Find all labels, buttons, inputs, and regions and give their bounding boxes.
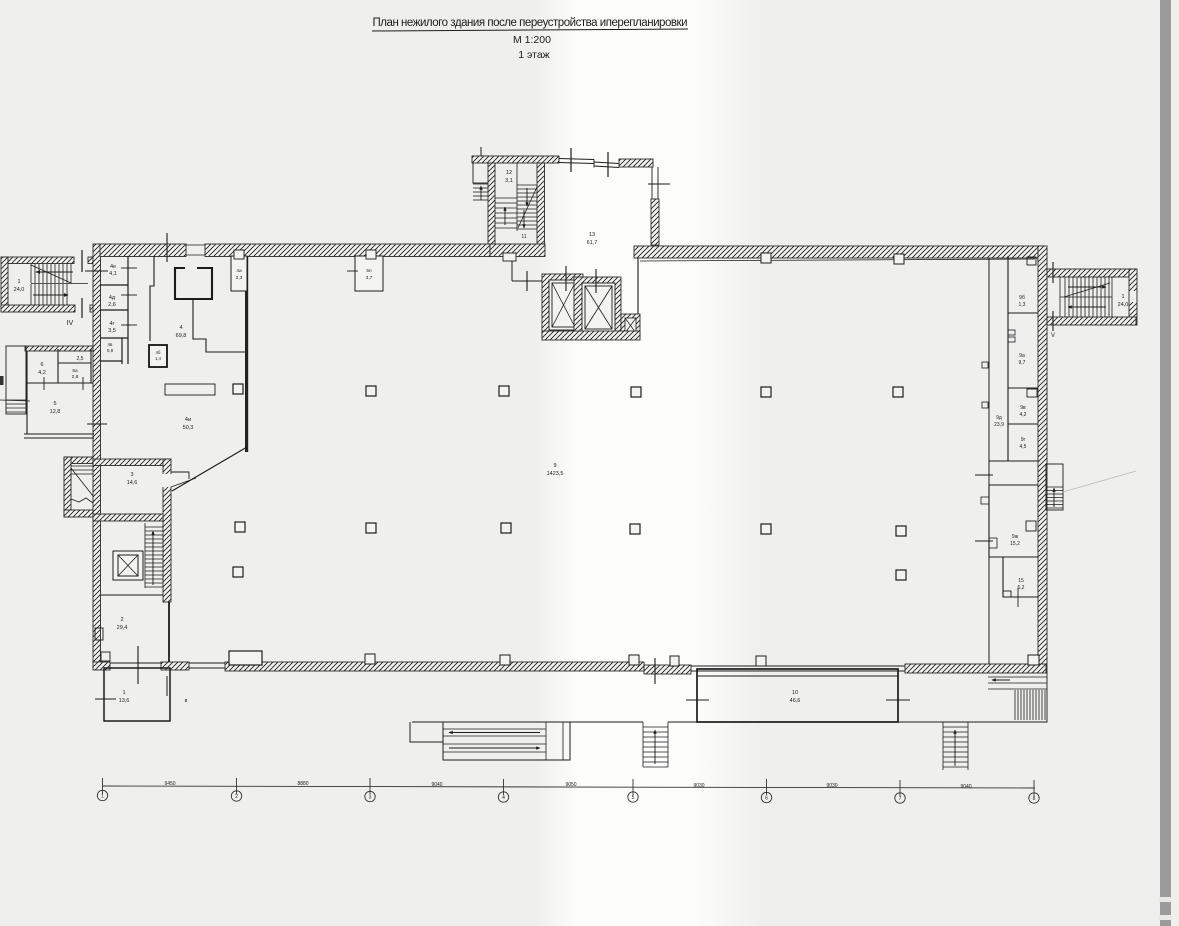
svg-text:6: 6 [40, 362, 43, 368]
svg-text:2,3: 2,3 [236, 275, 243, 281]
svg-text:2,8: 2,8 [72, 374, 79, 380]
svg-text:4в: 4в [108, 342, 114, 347]
svg-text:4и: 4и [185, 417, 191, 423]
svg-text:3: 3 [130, 472, 133, 478]
svg-text:23,9: 23,9 [994, 422, 1004, 428]
svg-text:2,6: 2,6 [108, 302, 116, 308]
svg-text:61,7: 61,7 [587, 240, 598, 246]
svg-text:4: 4 [179, 325, 182, 331]
svg-text:1423,5: 1423,5 [547, 471, 564, 477]
svg-text:IV: IV [67, 320, 74, 327]
svg-text:5: 5 [53, 401, 56, 407]
svg-text:4е: 4е [110, 264, 116, 270]
svg-text:4: 4 [502, 795, 505, 801]
svg-text:12: 12 [506, 170, 512, 176]
svg-text:1 этаж: 1 этаж [518, 49, 549, 61]
svg-text:9д: 9д [996, 415, 1002, 421]
svg-text:13: 13 [589, 232, 595, 238]
svg-text:М 1:200: М 1:200 [513, 34, 551, 46]
svg-text:9б: 9б [1019, 295, 1025, 301]
svg-text:10: 10 [792, 690, 798, 696]
svg-text:5п: 5п [366, 268, 372, 274]
svg-text:План нежилого здания после пер: План нежилого здания после переустройств… [373, 17, 688, 29]
svg-text:69,8: 69,8 [176, 333, 187, 339]
svg-text:9: 9 [553, 463, 556, 469]
svg-text:9040: 9040 [431, 782, 442, 788]
svg-text:3,5: 3,5 [108, 328, 116, 334]
svg-text:14,6: 14,6 [127, 480, 138, 486]
svg-text:12,8: 12,8 [50, 409, 61, 415]
svg-text:5а: 5а [72, 368, 78, 374]
svg-text:11: 11 [521, 234, 526, 240]
svg-text:6,2: 6,2 [1018, 585, 1025, 591]
svg-text:4,2: 4,2 [38, 370, 46, 376]
svg-text:24,0: 24,0 [1118, 302, 1129, 308]
svg-text:4,1: 4,1 [109, 271, 117, 277]
svg-text:4б: 4б [156, 350, 161, 355]
svg-text:46,6: 46,6 [790, 698, 801, 704]
svg-text:1: 1 [101, 794, 104, 800]
svg-text:5: 5 [632, 795, 635, 801]
svg-text:9в: 9в [1020, 405, 1026, 411]
svg-text:8880: 8880 [297, 781, 308, 787]
svg-text:9030: 9030 [693, 783, 704, 789]
svg-text:1,4: 1,4 [155, 356, 161, 361]
svg-text:9030: 9030 [826, 783, 837, 789]
svg-text:9а: 9а [1019, 353, 1025, 359]
svg-text:2,5: 2,5 [77, 356, 84, 362]
svg-text:8: 8 [1033, 796, 1036, 802]
svg-text:7: 7 [899, 796, 902, 802]
svg-text:2: 2 [120, 617, 123, 623]
svg-text:4,2: 4,2 [1020, 412, 1027, 418]
svg-text:15: 15 [1018, 578, 1024, 584]
svg-text:50,3: 50,3 [183, 425, 194, 431]
svg-text:15,2: 15,2 [1010, 541, 1020, 547]
svg-text:9450: 9450 [164, 781, 175, 787]
svg-text:3,1: 3,1 [505, 178, 513, 184]
svg-text:в: в [185, 698, 188, 704]
svg-text:3: 3 [369, 795, 372, 801]
svg-text:2: 2 [235, 794, 238, 800]
svg-text:4,5: 4,5 [1020, 444, 1027, 450]
svg-text:V: V [1051, 333, 1055, 339]
svg-text:9040: 9040 [960, 784, 971, 790]
svg-text:3,7: 3,7 [366, 275, 373, 281]
svg-text:13,6: 13,6 [119, 698, 130, 704]
svg-text:6: 6 [765, 796, 768, 802]
svg-text:1: 1 [122, 690, 125, 696]
svg-text:9ж: 9ж [1012, 534, 1019, 540]
svg-text:1: 1 [17, 279, 20, 285]
svg-text:29,4: 29,4 [117, 625, 128, 631]
svg-text:1: 1 [1121, 294, 1124, 300]
svg-text:1,3: 1,3 [1019, 302, 1026, 308]
svg-text:4д: 4д [109, 295, 116, 301]
svg-text:24,0: 24,0 [14, 287, 25, 293]
svg-text:9г: 9г [1021, 437, 1026, 443]
svg-text:9,7: 9,7 [1019, 360, 1026, 366]
svg-text:4а: 4а [236, 268, 242, 274]
svg-text:4г: 4г [109, 321, 114, 327]
svg-text:9050: 9050 [565, 782, 576, 788]
svg-text:0,8: 0,8 [107, 348, 114, 353]
